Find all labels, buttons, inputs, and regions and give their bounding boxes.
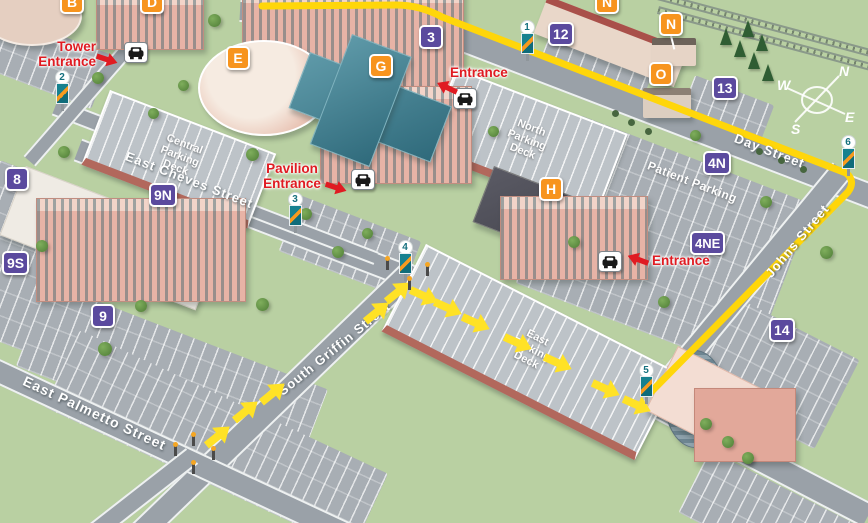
pavilion-entrance-label: Pavilion Entrance (258, 162, 326, 191)
lot-badge-3: 3 (419, 25, 443, 49)
wayfinding-sign-3: 3 (287, 192, 303, 233)
building-badge-g: G (369, 54, 393, 78)
compass-n: N (839, 63, 850, 79)
compass-rose: N W E S (775, 60, 867, 138)
building-badge-h: H (539, 177, 563, 201)
wayfinding-sign-6: 6 (840, 135, 856, 176)
bush (778, 157, 785, 164)
g-entrance-label: Entrance (450, 66, 508, 81)
car-icon (351, 169, 375, 190)
lot-badge-4ne: 4NE (690, 231, 725, 255)
compass-e: E (845, 109, 855, 125)
wayfinding-sign-5: 5 (638, 363, 654, 404)
compass-w: W (777, 77, 792, 93)
tree (362, 228, 373, 239)
tree (246, 148, 259, 161)
lot-badge-9n: 9N (149, 183, 177, 207)
lot-badge-8: 8 (5, 167, 29, 191)
tree (568, 236, 580, 248)
tree (98, 342, 112, 356)
tree (208, 14, 221, 27)
car-icon (124, 42, 148, 63)
lot-badge-9: 9 (91, 304, 115, 328)
traffic-light (212, 450, 215, 460)
tree (690, 130, 701, 141)
traffic-light (192, 464, 195, 474)
bush (628, 119, 635, 126)
tree (488, 126, 499, 137)
bush (645, 128, 652, 135)
traffic-light (174, 446, 177, 456)
tree (760, 196, 772, 208)
pine-tree (762, 64, 774, 81)
building-badge-o: O (649, 62, 673, 86)
sign-panel (640, 376, 653, 397)
sign-panel (521, 33, 534, 54)
campus-map: East Cheves Street Day Street Johns Stre… (0, 0, 868, 523)
building-o-house (643, 88, 691, 118)
building-badge-e: E (226, 46, 250, 70)
car-icon (598, 251, 622, 272)
tree (722, 436, 734, 448)
lot-badge-14: 14 (769, 318, 795, 342)
sign-panel (289, 205, 302, 226)
tree (135, 300, 147, 312)
wayfinding-sign-1: 1 (519, 20, 535, 61)
tree (820, 246, 833, 259)
tree (256, 298, 269, 311)
building-9n (36, 198, 246, 302)
tree (700, 418, 712, 430)
bush (612, 110, 619, 117)
tree (332, 246, 344, 258)
traffic-light (192, 436, 195, 446)
h-entrance-label: Entrance (652, 254, 710, 269)
sign-panel (56, 83, 69, 104)
lot-badge-13: 13 (712, 76, 738, 100)
wayfinding-sign-4: 4 (397, 240, 413, 281)
north-parking-deck-label: North Parking Deck (492, 112, 562, 169)
compass-s: S (791, 121, 801, 137)
building-badge-n: N (595, 0, 619, 14)
sign-panel (842, 148, 855, 169)
lot-badge-4n: 4N (703, 151, 731, 175)
tower-entrance-label: Tower Entrance (8, 40, 96, 69)
bush (800, 166, 807, 173)
building-badge-d: D (140, 0, 164, 14)
pine-tree (748, 52, 760, 69)
building-badge-b: B (60, 0, 84, 14)
pine-tree (756, 34, 768, 51)
building-badge-n2: N (659, 12, 683, 36)
bush (756, 148, 763, 155)
traffic-light (386, 260, 389, 270)
pine-tree (742, 20, 754, 37)
lot-badge-9s: 9S (2, 251, 29, 275)
tree (178, 80, 189, 91)
lot-badge-12: 12 (548, 22, 574, 46)
tree (36, 240, 48, 252)
tree (658, 296, 670, 308)
pine-tree (734, 40, 746, 57)
tree (148, 108, 159, 119)
wayfinding-sign-2: 2 (54, 70, 70, 111)
tree (92, 72, 104, 84)
traffic-light (426, 266, 429, 276)
traffic-light (408, 280, 411, 290)
tree (58, 146, 70, 158)
pine-tree (720, 28, 732, 45)
tree (742, 452, 754, 464)
sign-panel (399, 253, 412, 274)
east-parking-deck-label: East Parking Deck (498, 320, 565, 379)
